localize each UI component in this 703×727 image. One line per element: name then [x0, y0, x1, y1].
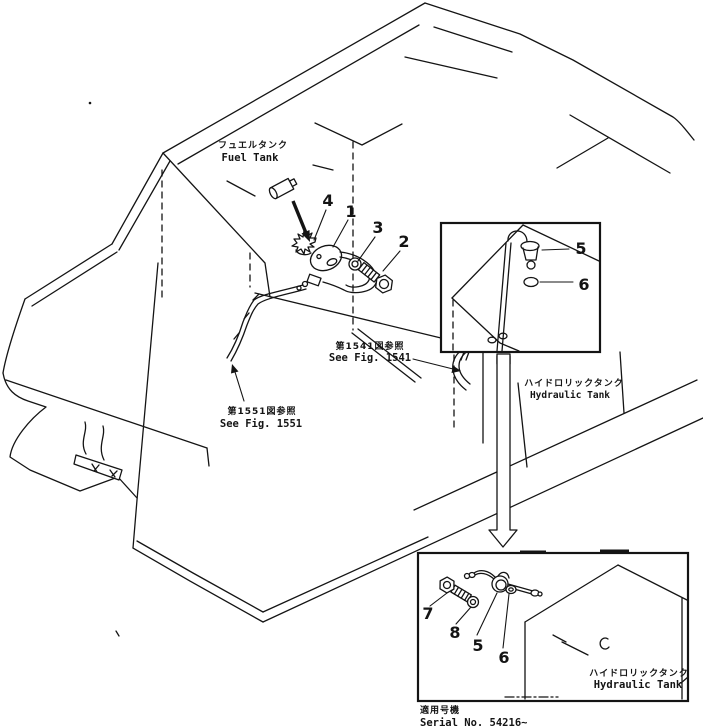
callout-top-5: 5 [575, 239, 586, 258]
sender-connector [268, 176, 298, 200]
serial-note-en: Serial No. 54216~ [420, 717, 527, 727]
part8-washer [468, 597, 479, 608]
see-fig-1551-arrowhead [231, 364, 239, 374]
callout-bottom-8: 8 [449, 623, 460, 642]
hydraulic-tank-label-inset-en: Hydraulic Tank [594, 679, 683, 691]
callout-bottom-7: 7 [422, 604, 433, 623]
detail-arrow [489, 354, 517, 547]
part2-bolt [356, 260, 396, 296]
parts-diagram: 4 1 3 2 5 6 [0, 0, 703, 727]
part6-gasket [524, 278, 538, 287]
fuel-tank-label-en: Fuel Tank [222, 152, 280, 164]
callout-3: 3 [372, 218, 383, 237]
see-fig-1541-leader [413, 359, 453, 369]
callout-4: 4 [322, 191, 333, 210]
hydraulic-tank-label-main-en: Hydraulic Tank [530, 390, 610, 401]
callout-1: 1 [345, 202, 356, 221]
see-fig-1541-en: See Fig. 1541 [329, 352, 411, 364]
serial-note-jp: 適用号機 [420, 704, 460, 716]
fuel-sender-assembly: 4 1 3 2 [227, 176, 410, 361]
hidden-edges [162, 142, 454, 428]
inset-box-top: 5 6 [441, 223, 600, 352]
hydraulic-tank-label-main-jp: ハイドロリックタンク [524, 377, 623, 389]
inset-box-bottom: 7 8 5 6 ハイドロリックタンク Hydraulic Tank [418, 551, 689, 701]
hydraulic-tank-label-inset-jp: ハイドロリックタンク [589, 667, 688, 679]
part6-gasket-bottom [506, 586, 516, 594]
see-fig-1551-leader [235, 372, 244, 401]
see-fig-1551-en: See Fig. 1551 [220, 418, 302, 430]
see-fig-1551-jp: 第1551図参照 [227, 405, 296, 417]
see-fig-1541-jp: 第1541図参照 [335, 340, 404, 352]
callout-top-6: 6 [578, 275, 589, 294]
callout-bottom-6: 6 [498, 648, 509, 667]
fuel-tank-label-jp: フュエルタンク [218, 139, 288, 151]
callout-2: 2 [398, 232, 409, 251]
callout-bottom-5: 5 [472, 636, 483, 655]
